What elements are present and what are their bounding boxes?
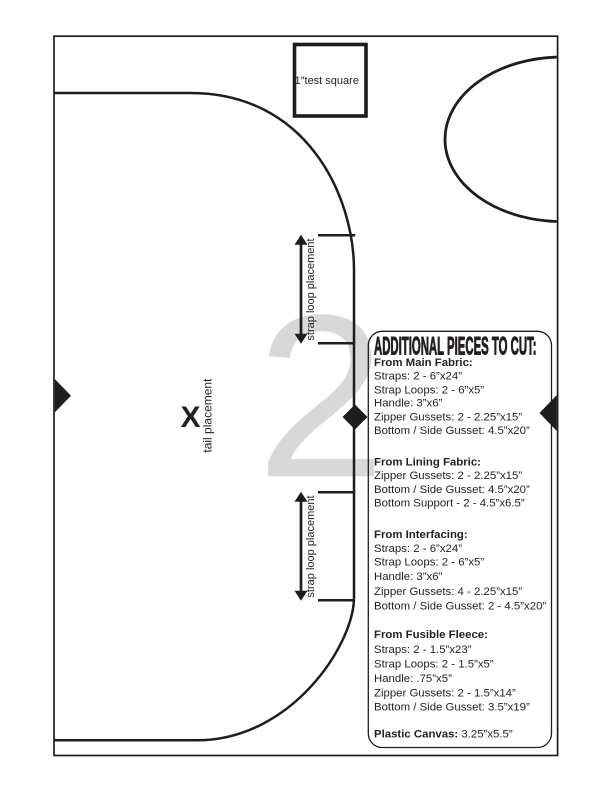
svg-text:Zipper Gussets: 4 - 2.25”x15”: Zipper Gussets: 4 - 2.25”x15” xyxy=(374,586,522,598)
svg-text:From Interfacing:: From Interfacing: xyxy=(374,529,468,541)
svg-text:strap loop placement: strap loop placement xyxy=(305,238,317,340)
svg-text:Strap Loops: 2 - 6”x5”: Strap Loops: 2 - 6”x5” xyxy=(374,557,484,569)
svg-text:Straps: 2 - 6”x24”: Straps: 2 - 6”x24” xyxy=(374,543,462,555)
svg-text:From Main Fabric:: From Main Fabric: xyxy=(374,357,473,369)
svg-text:Straps: 2 - 1.5”x23”: Straps: 2 - 1.5”x23” xyxy=(374,644,472,656)
svg-text:Zipper Gussets: 2 - 1.5”x14”: Zipper Gussets: 2 - 1.5”x14” xyxy=(374,687,516,699)
svg-text:Plastic Canvas: 3.25”x5.5”: Plastic Canvas: 3.25”x5.5” xyxy=(374,728,513,740)
svg-text:Handle: .75”x5”: Handle: .75”x5” xyxy=(374,673,452,685)
svg-text:Bottom / Side Gusset: 2 - 4.5”: Bottom / Side Gusset: 2 - 4.5”x20” xyxy=(374,600,546,612)
svg-text:Zipper Gussets: 2 - 2.25”x15”: Zipper Gussets: 2 - 2.25”x15” xyxy=(374,411,522,423)
svg-text:Handle: 3”x6”: Handle: 3”x6” xyxy=(374,571,443,583)
svg-text:Strap Loops: 2 - 6”x5”: Strap Loops: 2 - 6”x5” xyxy=(374,384,484,396)
svg-text:Handle: 3”x6”: Handle: 3”x6” xyxy=(374,398,443,410)
svg-text:X: X xyxy=(180,401,200,434)
svg-text:Zipper Gussets: 2 - 2.25”x15”: Zipper Gussets: 2 - 2.25”x15” xyxy=(374,470,522,482)
svg-text:1″test square: 1″test square xyxy=(295,75,359,87)
svg-text:From Fusible Fleece:: From Fusible Fleece: xyxy=(374,629,488,641)
svg-text:From Lining Fabric:: From Lining Fabric: xyxy=(374,457,481,469)
svg-text:Bottom / Side Gusset: 3.5”x19”: Bottom / Side Gusset: 3.5”x19” xyxy=(374,702,530,714)
svg-text:Bottom / Side Gusset: 4.5”x20”: Bottom / Side Gusset: 4.5”x20” xyxy=(374,484,530,496)
svg-text:2: 2 xyxy=(256,267,385,526)
svg-text:Straps: 2 - 6”x24”: Straps: 2 - 6”x24” xyxy=(374,371,462,383)
svg-text:Strap Loops: 2 - 1.5”x5”: Strap Loops: 2 - 1.5”x5” xyxy=(374,659,494,671)
svg-text:Bottom Support - 2 - 4.5”x6.5”: Bottom Support - 2 - 4.5”x6.5” xyxy=(374,498,525,510)
svg-text:strap loop placement: strap loop placement xyxy=(305,495,317,597)
svg-text:tail placement: tail placement xyxy=(200,378,214,453)
svg-text:Bottom / Side Gusset: 4.5”x20”: Bottom / Side Gusset: 4.5”x20” xyxy=(374,425,530,437)
